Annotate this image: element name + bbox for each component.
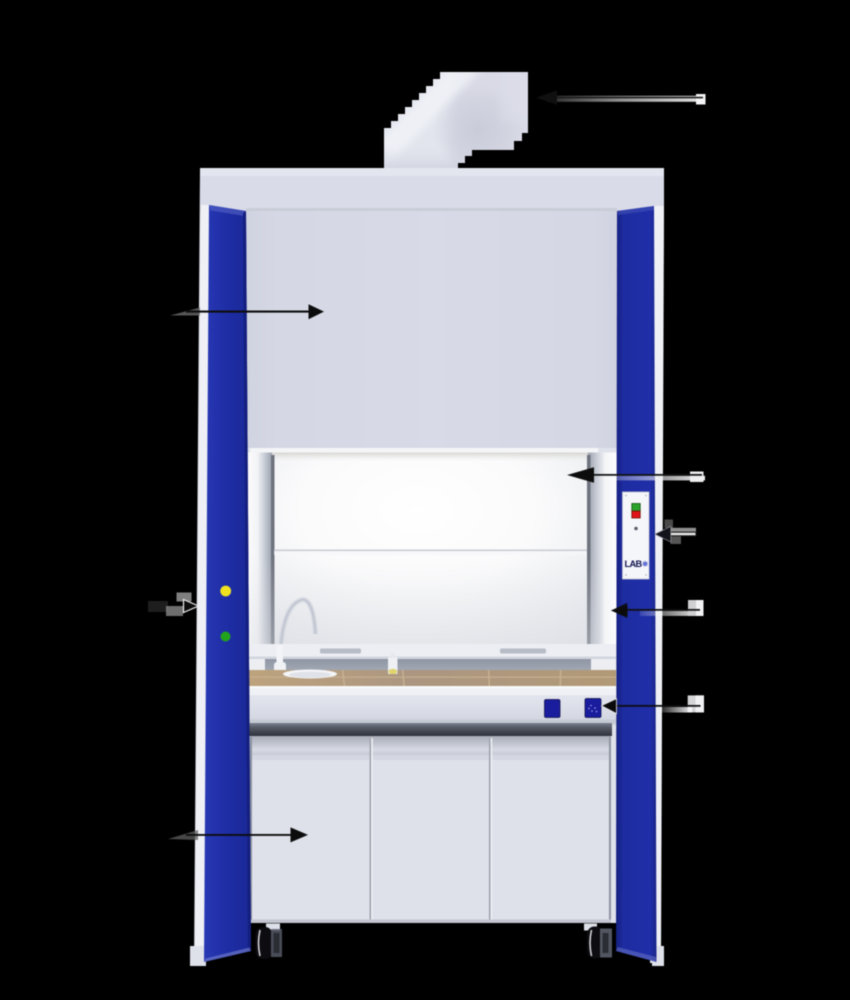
svg-text:LAB: LAB	[625, 559, 643, 569]
svg-text:❋: ❋	[642, 560, 649, 569]
